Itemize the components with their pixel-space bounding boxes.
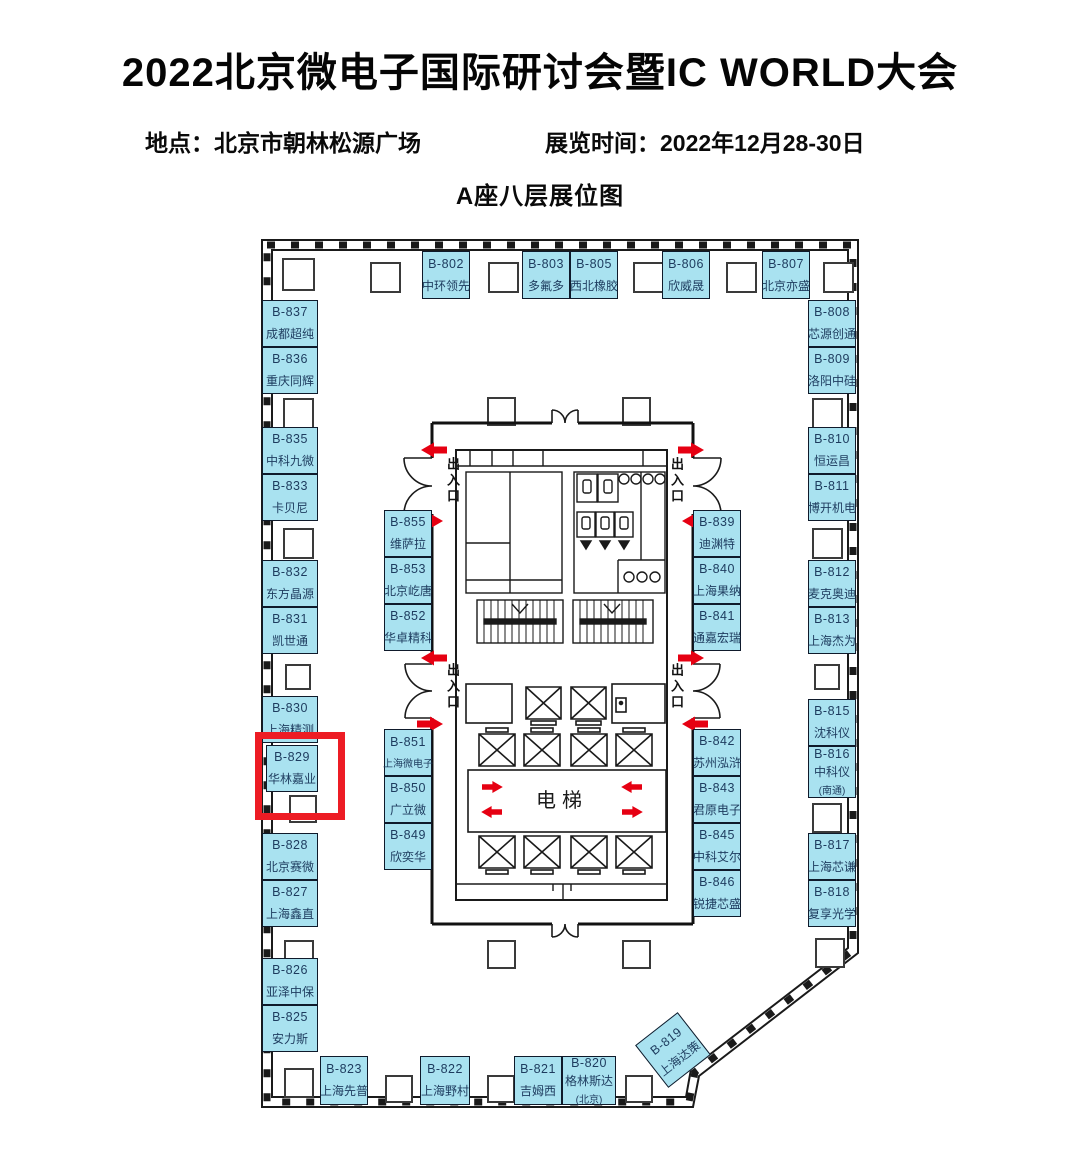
booth-id: B-826 xyxy=(272,963,308,977)
highlight-box-B-829 xyxy=(255,732,345,820)
booth-name: 复享光学 xyxy=(808,905,856,922)
booth-B-808: B-808芯源创通 xyxy=(808,300,856,347)
booth-B-810: B-810恒运昌 xyxy=(808,427,856,474)
booth-name: 君原电子 xyxy=(693,801,741,818)
booth-id: B-839 xyxy=(699,515,735,529)
booth-id: B-803 xyxy=(528,257,564,271)
booth-id: B-812 xyxy=(814,565,850,579)
booth-id: B-855 xyxy=(390,515,426,529)
booth-name: 多氟多 xyxy=(528,277,564,294)
booth-name: 芯源创通 xyxy=(808,325,856,342)
booth-B-850: B-850广立微 xyxy=(384,776,432,823)
booth-name2: (北京) xyxy=(576,1091,603,1106)
booth-id: B-830 xyxy=(272,701,308,715)
entrance-label-left-bottom: 出入口 xyxy=(443,663,462,711)
booth-id: B-802 xyxy=(428,257,464,271)
entrance-label-left-top: 出入口 xyxy=(443,457,462,505)
booth-id: B-807 xyxy=(768,257,804,271)
booth-id: B-816 xyxy=(814,747,850,761)
booth-B-839: B-839迪渊特 xyxy=(693,510,741,557)
booth-name: 恒运昌 xyxy=(814,452,850,469)
booth-id: B-808 xyxy=(814,305,850,319)
booth-name: 上海鑫直 xyxy=(266,905,314,922)
booth-name: 凯世通 xyxy=(272,632,308,649)
booth-B-818: B-818复享光学 xyxy=(808,880,856,927)
booth-name: 东方晶源 xyxy=(266,585,314,602)
core-block xyxy=(456,450,667,900)
entrance-label-right-bottom: 出入口 xyxy=(667,663,686,711)
booth-name: 北京赛微 xyxy=(266,858,314,875)
booth-id: B-849 xyxy=(390,828,426,842)
booth-name: 上海野村 xyxy=(421,1082,469,1099)
booth-B-846: B-846锐捷芯盛 xyxy=(693,870,741,917)
booth-name: 迪渊特 xyxy=(699,535,735,552)
booth-id: B-821 xyxy=(520,1062,556,1076)
booth-name: 博开机电 xyxy=(808,499,856,516)
booth-B-831: B-831凯世通 xyxy=(262,607,318,654)
booth-B-811: B-811博开机电 xyxy=(808,474,856,521)
elevator-shafts xyxy=(466,684,666,874)
booth-name: 亚泽中保 xyxy=(266,983,314,1000)
booth-B-823: B-823上海先普 xyxy=(320,1056,368,1105)
booth-name: 中科仪 xyxy=(814,763,850,780)
booth-B-841: B-841通嘉宏瑞 xyxy=(693,604,741,651)
booth-B-851: B-851上海微电子 xyxy=(384,729,432,776)
booth-B-852: B-852华卓精科 xyxy=(384,604,432,651)
booth-id: B-813 xyxy=(814,612,850,626)
booth-name: 通嘉宏瑞 xyxy=(693,629,741,646)
restroom-block xyxy=(574,472,665,593)
booth-B-817: B-817上海芯谦 xyxy=(808,833,856,880)
booth-name: 中科艾尔 xyxy=(693,848,741,865)
booth-id: B-851 xyxy=(390,735,426,749)
booth-name: 欣威晟 xyxy=(668,277,704,294)
booth-name: 欣奕华 xyxy=(390,848,426,865)
booth-name: 安力斯 xyxy=(272,1030,308,1047)
outer-wall xyxy=(262,240,858,1107)
booth-id: B-811 xyxy=(815,479,850,493)
booth-name: 洛阳中硅 xyxy=(808,372,856,389)
booth-id: B-832 xyxy=(272,565,308,579)
booth-B-813: B-813上海杰为 xyxy=(808,607,856,654)
booth-B-828: B-828北京赛微 xyxy=(262,833,318,880)
booth-name: 成都超纯 xyxy=(266,325,314,342)
booth-B-812: B-812麦克奥迪 xyxy=(808,560,856,607)
booth-id: B-836 xyxy=(272,352,308,366)
booth-B-836: B-836重庆同辉 xyxy=(262,347,318,394)
booth-name: 上海微电子 xyxy=(383,755,433,770)
booth-name: 卡贝尼 xyxy=(272,499,308,516)
booth-B-835: B-835中科九微 xyxy=(262,427,318,474)
booth-B-833: B-833卡贝尼 xyxy=(262,474,318,521)
booth-id: B-809 xyxy=(814,352,850,366)
booth-id: B-846 xyxy=(699,875,735,889)
booth-id: B-815 xyxy=(814,704,850,718)
booth-B-815: B-815沈科仪 xyxy=(808,699,856,746)
booth-id: B-841 xyxy=(699,609,735,623)
booth-B-802: B-802中环领先 xyxy=(422,251,470,299)
booth-B-853: B-853北京屹唐 xyxy=(384,557,432,604)
booth-id: B-825 xyxy=(272,1010,308,1024)
booth-name: 维萨拉 xyxy=(390,535,426,552)
booth-B-842: B-842苏州泓浒 xyxy=(693,729,741,776)
booth-id: B-843 xyxy=(699,781,735,795)
booth-id: B-850 xyxy=(390,781,426,795)
booth-id: B-820 xyxy=(571,1056,607,1070)
booth-id: B-805 xyxy=(576,257,612,271)
booth-id: B-845 xyxy=(699,828,735,842)
booth-id: B-810 xyxy=(814,432,850,446)
booth-name: 重庆同辉 xyxy=(266,372,314,389)
booth-id: B-835 xyxy=(272,432,308,446)
booth-B-825: B-825安力斯 xyxy=(262,1005,318,1052)
booth-B-855: B-855维萨拉 xyxy=(384,510,432,557)
booth-name: 上海杰为 xyxy=(808,632,856,649)
booth-name: 沈科仪 xyxy=(814,724,850,741)
booth-name: 北京屹唐 xyxy=(384,582,432,599)
booth-name: 上海芯谦 xyxy=(808,858,856,875)
booth-name: 北京亦盛 xyxy=(762,277,810,294)
booth-name: 华卓精科 xyxy=(384,629,432,646)
booth-B-840: B-840上海果纳 xyxy=(693,557,741,604)
booth-name: 上海先普 xyxy=(320,1082,368,1099)
storage-rooms xyxy=(466,472,562,593)
booth-id: B-837 xyxy=(272,305,308,319)
booth-name: 上海果纳 xyxy=(693,582,741,599)
booth-id: B-822 xyxy=(427,1062,463,1076)
booth-id: B-831 xyxy=(272,612,308,626)
booth-B-805: B-805西北橡胶 xyxy=(570,251,618,299)
booth-B-806: B-806欣威晟 xyxy=(662,251,710,299)
booth-B-849: B-849欣奕华 xyxy=(384,823,432,870)
booth-B-845: B-845中科艾尔 xyxy=(693,823,741,870)
booth-id: B-827 xyxy=(272,885,308,899)
corridor-columns xyxy=(283,259,853,1102)
booth-B-816: B-816中科仪(南通) xyxy=(808,746,856,798)
booth-B-827: B-827上海鑫直 xyxy=(262,880,318,927)
booth-B-809: B-809洛阳中硅 xyxy=(808,347,856,394)
stairs xyxy=(477,600,653,643)
booth-id: B-817 xyxy=(814,838,850,852)
booth-B-803: B-803多氟多 xyxy=(522,251,570,299)
booth-name: 西北橡胶 xyxy=(570,277,618,294)
booth-B-826: B-826亚泽中保 xyxy=(262,958,318,1005)
booth-name: 中科九微 xyxy=(266,452,314,469)
booth-name: 中环领先 xyxy=(422,277,470,294)
booth-name: 吉姆西 xyxy=(520,1082,556,1099)
elevator-label: 电梯 xyxy=(518,784,606,813)
booth-id: B-842 xyxy=(699,734,735,748)
booth-B-821: B-821吉姆西 xyxy=(514,1056,562,1105)
booth-name: 广立微 xyxy=(390,801,426,818)
booth-name: 麦克奥迪 xyxy=(808,585,856,602)
booth-id: B-852 xyxy=(390,609,426,623)
booth-id: B-833 xyxy=(272,479,308,493)
booth-B-832: B-832东方晶源 xyxy=(262,560,318,607)
booth-B-822: B-822上海野村 xyxy=(420,1056,470,1105)
booth-id: B-853 xyxy=(390,562,426,576)
booth-id: B-818 xyxy=(814,885,850,899)
booth-id: B-823 xyxy=(326,1062,362,1076)
booth-B-807: B-807北京亦盛 xyxy=(762,251,810,299)
entrance-label-right-top: 出入口 xyxy=(667,457,686,505)
booth-id: B-840 xyxy=(699,562,735,576)
booth-name2: (南通) xyxy=(819,782,846,797)
booth-name: 苏州泓浒 xyxy=(693,754,741,771)
floor-plan xyxy=(0,0,1080,1173)
booth-B-843: B-843君原电子 xyxy=(693,776,741,823)
booth-B-820: B-820格林斯达(北京) xyxy=(562,1056,616,1105)
booth-name: 格林斯达 xyxy=(565,1072,613,1089)
booth-name: 锐捷芯盛 xyxy=(693,895,741,912)
booth-id: B-828 xyxy=(272,838,308,852)
booth-B-837: B-837成都超纯 xyxy=(262,300,318,347)
booth-id: B-806 xyxy=(668,257,704,271)
